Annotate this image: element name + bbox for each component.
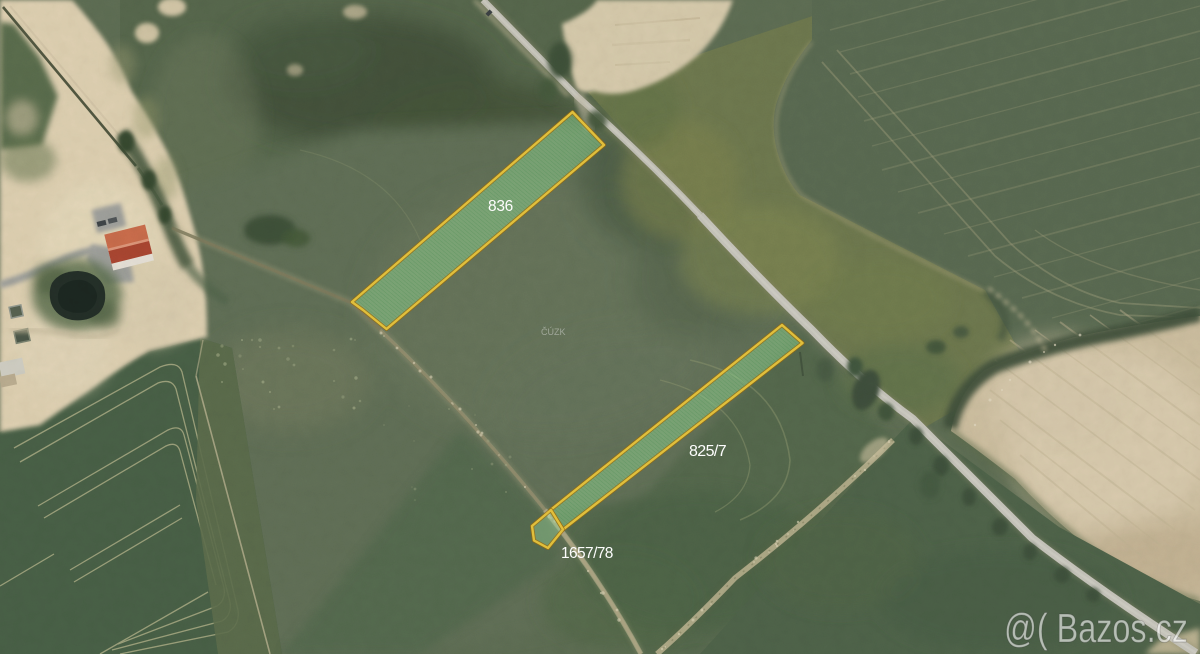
svg-text:1657/78: 1657/78: [561, 545, 613, 562]
svg-text:ČÚZK: ČÚZK: [541, 327, 566, 337]
svg-text:836: 836: [488, 198, 513, 215]
svg-text:825/7: 825/7: [689, 443, 727, 460]
svg-text:@( Bazos.cz: @( Bazos.cz: [1004, 605, 1188, 651]
